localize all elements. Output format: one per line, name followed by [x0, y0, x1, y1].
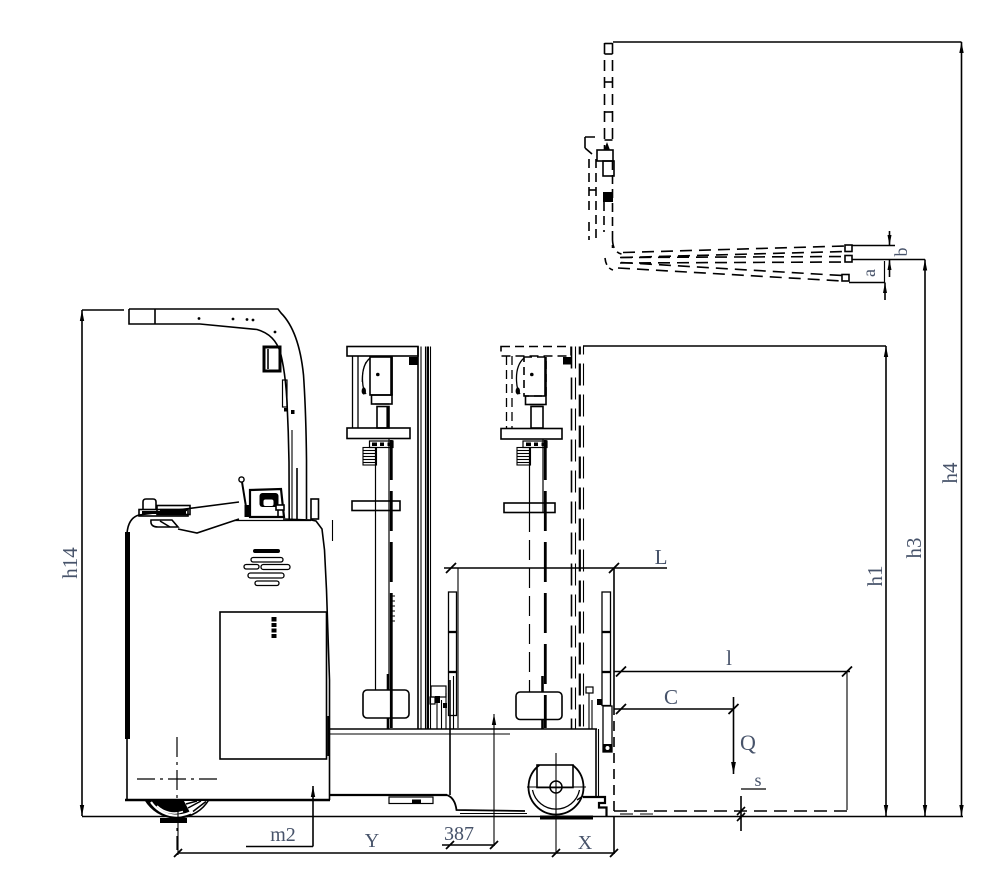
svg-text:a: a — [859, 269, 879, 277]
svg-text:C: C — [664, 685, 678, 709]
svg-text:h14: h14 — [58, 547, 82, 579]
svg-text:h1: h1 — [863, 566, 887, 587]
svg-text:m2: m2 — [270, 824, 296, 846]
svg-text:h3: h3 — [902, 538, 926, 559]
svg-text:Y: Y — [365, 830, 379, 852]
svg-text:Q: Q — [740, 730, 756, 755]
svg-text:X: X — [578, 832, 593, 854]
svg-text:L: L — [655, 545, 668, 569]
svg-text:b: b — [891, 248, 911, 257]
svg-text:s: s — [754, 770, 761, 790]
svg-text:h4: h4 — [938, 462, 962, 484]
svg-text:l: l — [726, 646, 732, 670]
svg-text:387: 387 — [444, 823, 474, 845]
